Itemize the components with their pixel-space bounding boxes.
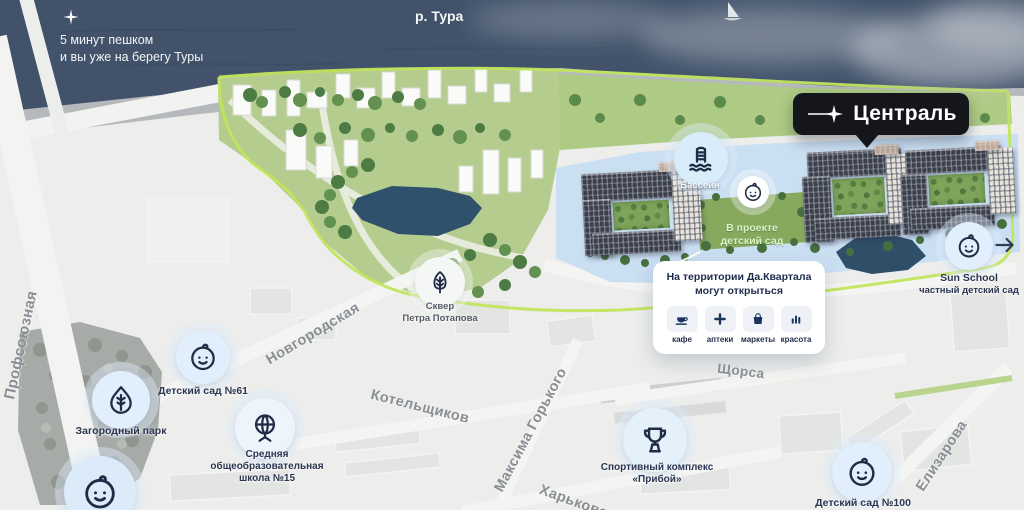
sport-complex-label: Спортивный комплекс «Прибой»: [601, 462, 714, 486]
beauty-icon: [788, 311, 804, 327]
sparkle-icon: [805, 102, 845, 126]
amenity-markets[interactable]: маркеты: [742, 306, 775, 344]
country-park-label: Загородный парк: [76, 425, 167, 438]
baby-icon: [955, 232, 983, 260]
amenity-cafe[interactable]: кафе: [666, 306, 699, 344]
leaf-icon: [426, 268, 454, 296]
pharmacy-plus-icon: [712, 311, 728, 327]
trophy-icon: [637, 422, 673, 458]
globe-icon: [248, 411, 282, 445]
brand-badge[interactable]: Централь: [793, 93, 969, 135]
arrow-right-icon[interactable]: [992, 232, 1018, 258]
brand-name: Централь: [853, 102, 956, 126]
pool-ladder-icon: [685, 143, 717, 175]
pool-label: Бассейн: [680, 180, 720, 192]
amenities-card: На территории Да.Квартала могут открытьс…: [653, 261, 825, 354]
baby-icon: [187, 341, 219, 373]
sparkle-icon: [62, 8, 80, 26]
amenity-pharmacy[interactable]: аптеки: [704, 306, 737, 344]
kindergarten61-pin[interactable]: [176, 330, 230, 384]
shopping-bag-icon: [750, 311, 766, 327]
country-park-pin[interactable]: [92, 371, 150, 429]
note-line: 5 минут пешком: [60, 32, 203, 49]
baby-icon: [80, 472, 120, 510]
skver-label: Сквер Петра Потапова: [402, 301, 477, 324]
skver-pin[interactable]: [415, 257, 465, 307]
pool-pin[interactable]: [674, 132, 728, 186]
sun-school-pin[interactable]: [945, 222, 993, 270]
baby-icon: [845, 455, 879, 489]
masterplan-map: р. Тура 5 минут пешком и вы уже на берег…: [0, 0, 1024, 510]
kindergarten61-label: Детский сад №61: [158, 385, 248, 398]
sun-school-label: Sun School частный детский сад: [919, 272, 1019, 296]
school15-label: Средняя общеобразовательная школа №15: [210, 449, 323, 486]
planned-kindergarten-pin[interactable]: [737, 176, 769, 208]
coffee-icon: [674, 311, 691, 328]
card-title: На территории Да.Квартала могут открытьс…: [659, 271, 819, 298]
river-name: р. Тура: [415, 8, 463, 24]
baby-icon: [742, 181, 764, 203]
note-line: и вы уже на берегу Туры: [60, 49, 203, 66]
amenity-beauty[interactable]: красота: [780, 306, 813, 344]
riverside-note: 5 минут пешком и вы уже на берегу Туры: [60, 8, 203, 66]
kindergarten100-label: Детский сад №100: [815, 497, 911, 510]
leaf-drop-icon: [104, 383, 138, 417]
kindergarten100-pin[interactable]: [832, 442, 892, 502]
planned-kindergarten-label: В проекте детский сад: [721, 222, 784, 248]
